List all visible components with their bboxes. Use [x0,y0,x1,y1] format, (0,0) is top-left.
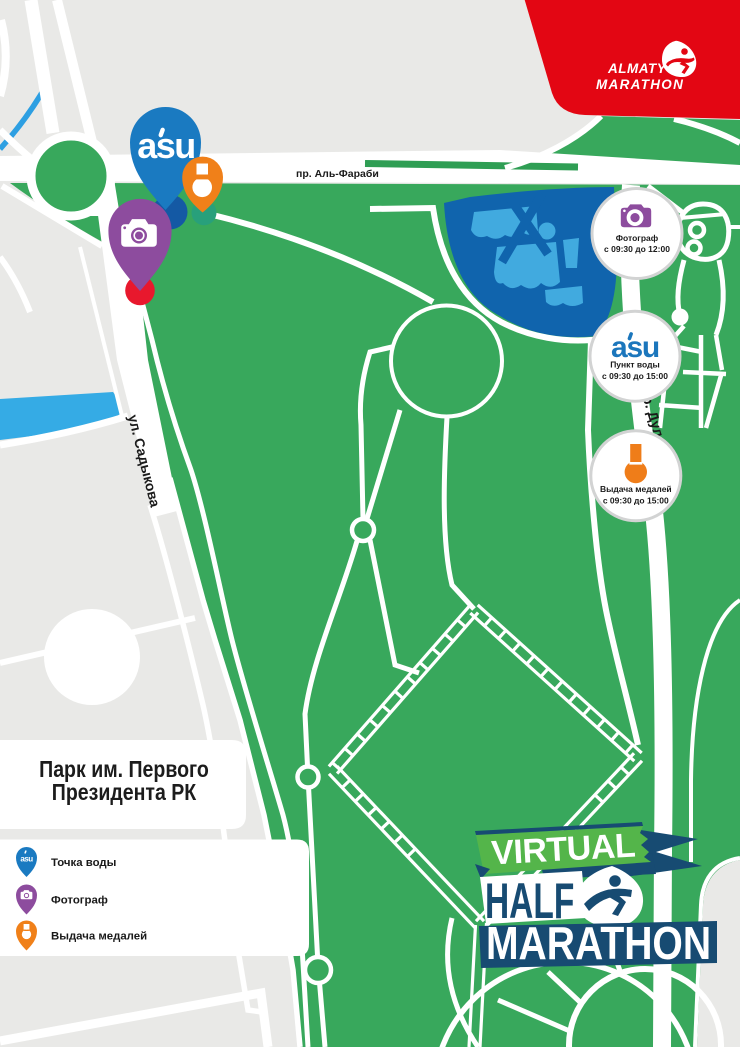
svg-text:asu: asu [20,855,33,864]
svg-text:ALMATY: ALMATY [607,61,668,76]
svg-text:пр. Аль-Фараби: пр. Аль-Фараби [296,168,379,180]
svg-text:MARATHON: MARATHON [486,918,711,970]
svg-text:Выдача медалей: Выдача медалей [600,484,672,494]
svg-text:Президента РК: Президента РК [52,780,197,806]
svg-text:с 09:30 до 12:00: с 09:30 до 12:00 [604,244,670,254]
svg-text:VIRTUAL: VIRTUAL [490,827,636,873]
svg-text:Выдача медалей: Выдача медалей [51,931,147,943]
svg-text:Фотограф: Фотограф [51,895,108,907]
svg-text:Пункт воды: Пункт воды [610,360,660,370]
svg-text:Точка воды: Точка воды [51,857,116,869]
svg-text:Фотограф: Фотограф [616,233,659,243]
svg-text:Парк им. Первого: Парк им. Первого [39,757,209,783]
svg-text:MARATHON: MARATHON [596,77,684,92]
svg-text:с 09:30 до 15:00: с 09:30 до 15:00 [602,371,668,381]
svg-text:asu: asu [137,125,195,166]
svg-text:с 09:30 до 15:00: с 09:30 до 15:00 [603,496,669,506]
